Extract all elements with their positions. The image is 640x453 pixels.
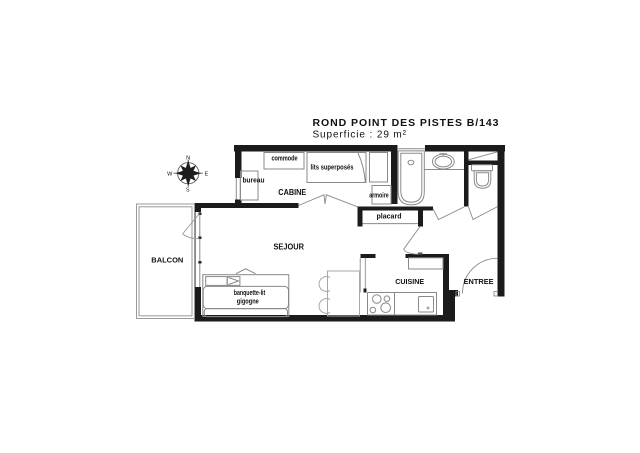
svg-text:lits superposés: lits superposés <box>311 165 354 172</box>
svg-text:banquette-lit: banquette-lit <box>234 290 266 297</box>
svg-text:SEJOUR: SEJOUR <box>273 243 304 252</box>
svg-text:placard: placard <box>377 214 402 221</box>
svg-text:CUISINE: CUISINE <box>395 277 424 286</box>
svg-text:commode: commode <box>272 156 298 163</box>
svg-text:gigogne: gigogne <box>237 299 259 306</box>
svg-text:BALCON: BALCON <box>151 255 183 264</box>
svg-text:ENTREE: ENTREE <box>464 277 494 286</box>
svg-text:Superficie : 29 m²: Superficie : 29 m² <box>313 129 407 140</box>
svg-text:armoire: armoire <box>369 193 389 200</box>
svg-text:W: W <box>167 171 173 177</box>
svg-text:E: E <box>205 171 209 177</box>
svg-text:bureau: bureau <box>243 178 265 185</box>
svg-text:ROND POINT DES PISTES B/143: ROND POINT DES PISTES B/143 <box>313 117 499 129</box>
svg-text:S: S <box>186 187 190 193</box>
svg-text:CABINE: CABINE <box>278 188 307 197</box>
svg-text:N: N <box>186 156 190 162</box>
